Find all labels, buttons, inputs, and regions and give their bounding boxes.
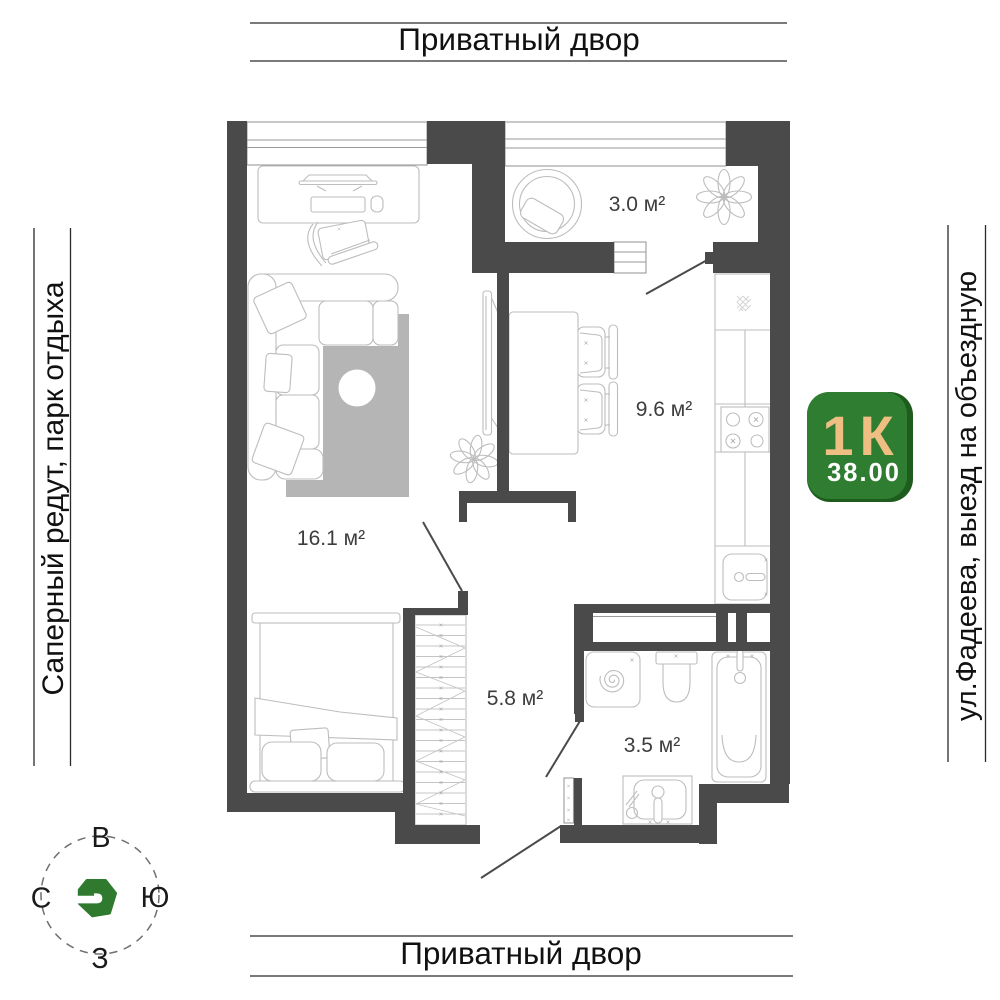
svg-text:16.1 м²: 16.1 м² xyxy=(297,527,365,550)
svg-text:3.0 м²: 3.0 м² xyxy=(609,193,665,216)
svg-text:1К: 1К xyxy=(822,404,899,467)
svg-text:Приватный двор: Приватный двор xyxy=(398,21,640,57)
svg-text:С: С xyxy=(31,883,52,915)
svg-text:З: З xyxy=(91,943,108,975)
svg-text:5.8 м²: 5.8 м² xyxy=(487,687,543,710)
svg-text:ул.Фадеева, выезд на объездную: ул.Фадеева, выезд на объездную xyxy=(951,271,983,721)
svg-text:9.6 м²: 9.6 м² xyxy=(636,398,692,421)
svg-text:Ю: Ю xyxy=(141,882,170,914)
svg-text:38.00: 38.00 xyxy=(827,459,901,487)
svg-text:Приватный двор: Приватный двор xyxy=(400,935,642,971)
svg-text:В: В xyxy=(91,822,110,854)
svg-text:Саперный редут, парк отдыха: Саперный редут, парк отдыха xyxy=(37,281,70,695)
svg-text:3.5 м²: 3.5 м² xyxy=(624,734,680,757)
